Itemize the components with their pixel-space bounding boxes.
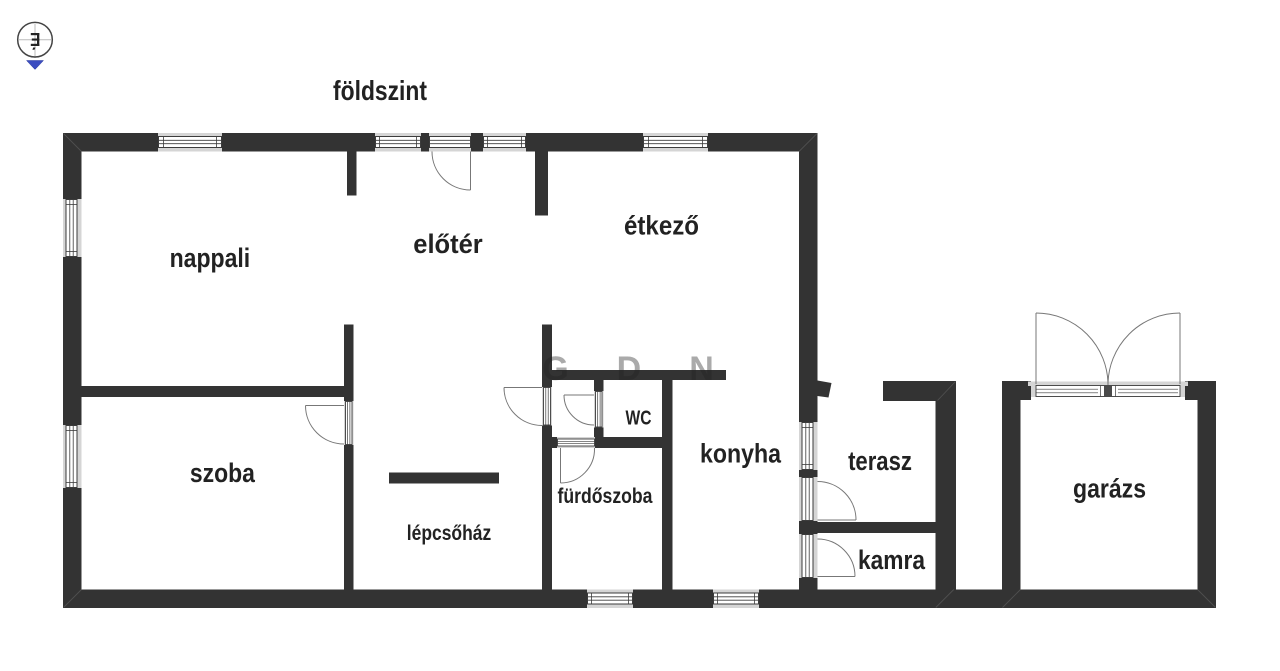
svg-text:garázs: garázs <box>1073 474 1146 504</box>
svg-text:kamra: kamra <box>858 545 926 575</box>
svg-text:étkező: étkező <box>624 211 699 241</box>
svg-text:lépcsőház: lépcsőház <box>407 523 491 546</box>
svg-text:szoba: szoba <box>190 458 256 488</box>
svg-text:WC: WC <box>626 407 652 429</box>
svg-text:nappali: nappali <box>170 243 251 273</box>
svg-text:előtér: előtér <box>413 228 482 259</box>
svg-text:földszint: földszint <box>333 76 427 107</box>
svg-text:konyha: konyha <box>700 439 782 469</box>
svg-text:terasz: terasz <box>848 447 912 477</box>
svg-text:fürdőszoba: fürdőszoba <box>558 485 653 509</box>
svg-text:GDN: GDN <box>542 350 762 388</box>
